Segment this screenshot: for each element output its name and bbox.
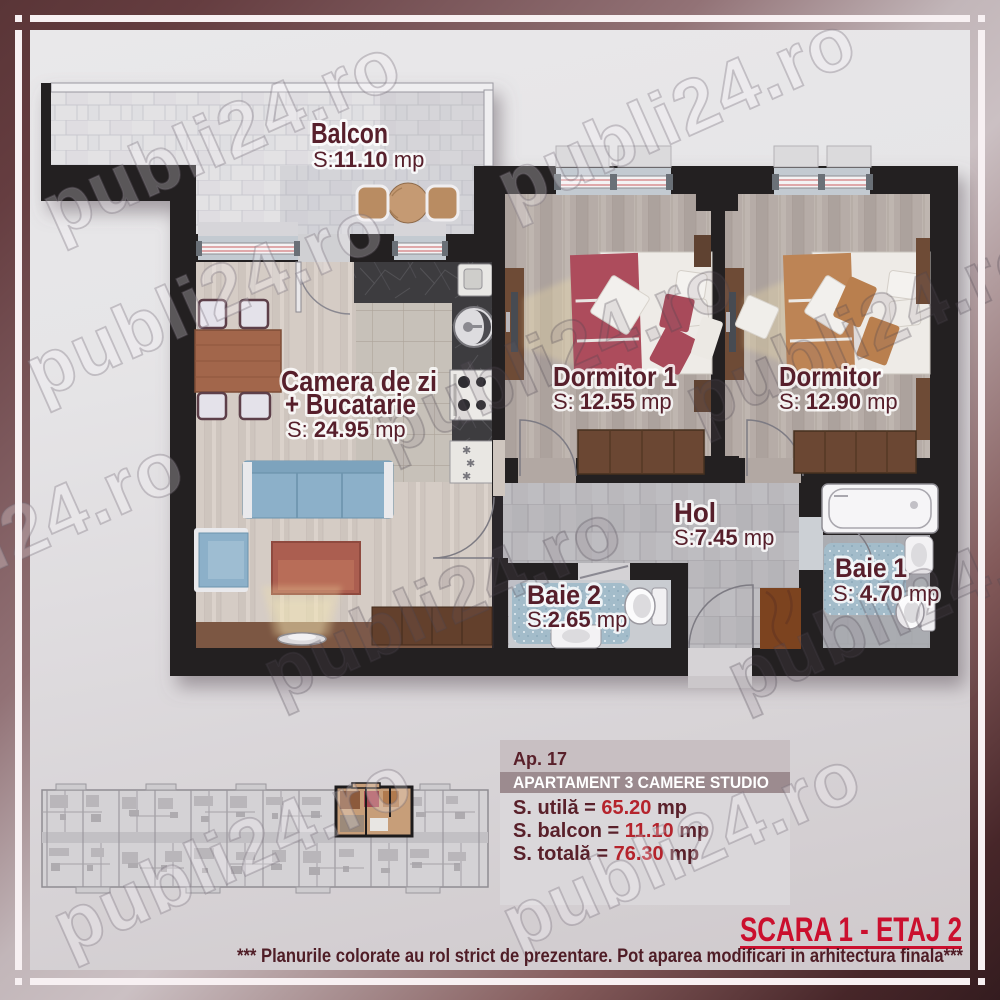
- svg-text:S:11.10 mp: S:11.10 mp: [313, 147, 424, 172]
- svg-text:Baie 1: Baie 1: [835, 553, 907, 583]
- svg-text:S: 12.90 mp: S: 12.90 mp: [779, 389, 898, 414]
- svg-text:S: 12.55 mp: S: 12.55 mp: [553, 389, 672, 414]
- svg-text:publi24.ro: publi24.ro: [0, 422, 197, 655]
- svg-text:✱: ✱: [462, 445, 471, 457]
- svg-text:✱: ✱: [466, 458, 475, 470]
- svg-text:S:2.65 mp: S:2.65 mp: [527, 607, 627, 632]
- svg-text:✱: ✱: [462, 471, 471, 483]
- svg-text:S: 24.95 mp: S: 24.95 mp: [287, 417, 406, 442]
- svg-text:SCARA 1 - ETAJ 2: SCARA 1 - ETAJ 2: [740, 911, 962, 949]
- svg-text:*** Planurile colorate au rol: *** Planurile colorate au rol strict de …: [237, 946, 964, 967]
- svg-text:Balcon: Balcon: [311, 118, 388, 150]
- svg-text:Dormitor: Dormitor: [779, 361, 881, 392]
- svg-text:S:7.45 mp: S:7.45 mp: [674, 525, 774, 550]
- svg-text:Dormitor 1: Dormitor 1: [553, 361, 677, 392]
- svg-text:Ap. 17: Ap. 17: [513, 749, 567, 769]
- svg-text:Hol: Hol: [674, 497, 716, 528]
- svg-text:Baie 2: Baie 2: [527, 580, 601, 610]
- svg-text:S: 4.70 mp: S: 4.70 mp: [833, 581, 939, 606]
